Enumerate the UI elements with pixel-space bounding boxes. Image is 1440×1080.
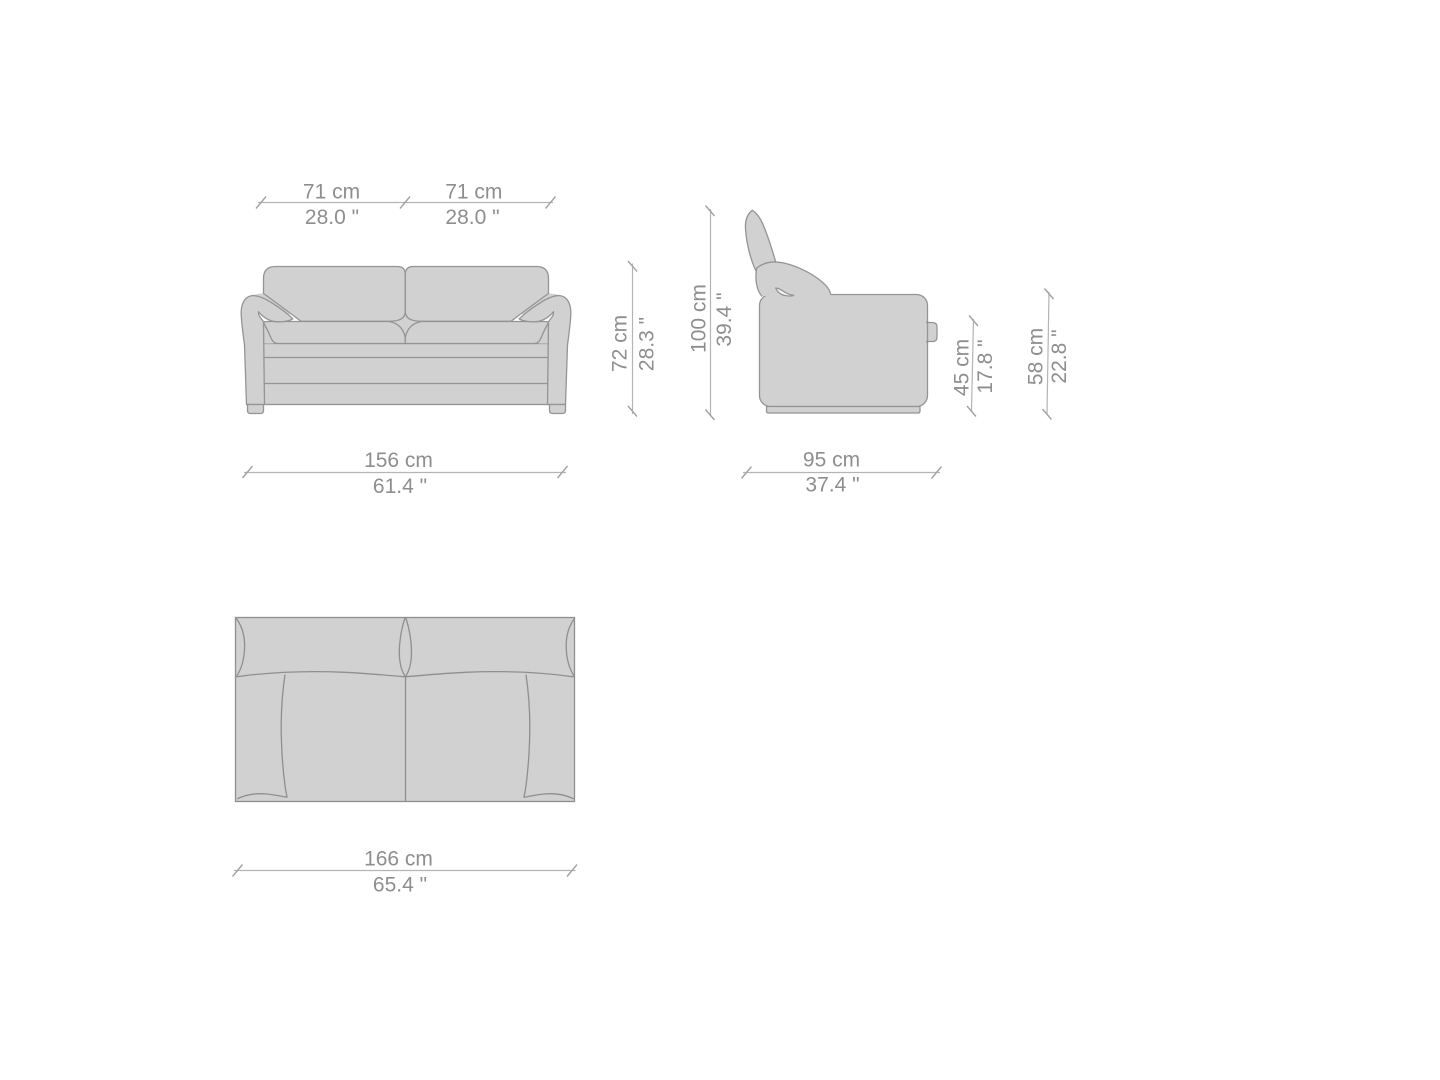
svg-text:72 cm: 72 cm [609, 315, 632, 372]
svg-text:28.0 ": 28.0 " [445, 206, 499, 229]
svg-text:71 cm: 71 cm [445, 181, 502, 204]
svg-text:39.4 ": 39.4 " [713, 292, 736, 346]
svg-text:37.4 ": 37.4 " [805, 474, 859, 497]
svg-text:95 cm: 95 cm [803, 449, 860, 472]
svg-text:17.8 ": 17.8 " [974, 339, 997, 393]
svg-text:156 cm: 156 cm [364, 449, 433, 472]
svg-text:28.3 ": 28.3 " [636, 317, 659, 371]
svg-text:65.4 ": 65.4 " [373, 874, 427, 897]
svg-text:58 cm: 58 cm [1025, 328, 1048, 385]
svg-text:100 cm: 100 cm [688, 284, 711, 353]
svg-text:61.4 ": 61.4 " [373, 475, 427, 498]
svg-text:45 cm: 45 cm [951, 339, 974, 396]
svg-text:28.0 ": 28.0 " [305, 206, 359, 229]
svg-text:166 cm: 166 cm [364, 848, 433, 871]
svg-text:22.8 ": 22.8 " [1048, 329, 1071, 383]
svg-text:71 cm: 71 cm [303, 181, 360, 204]
